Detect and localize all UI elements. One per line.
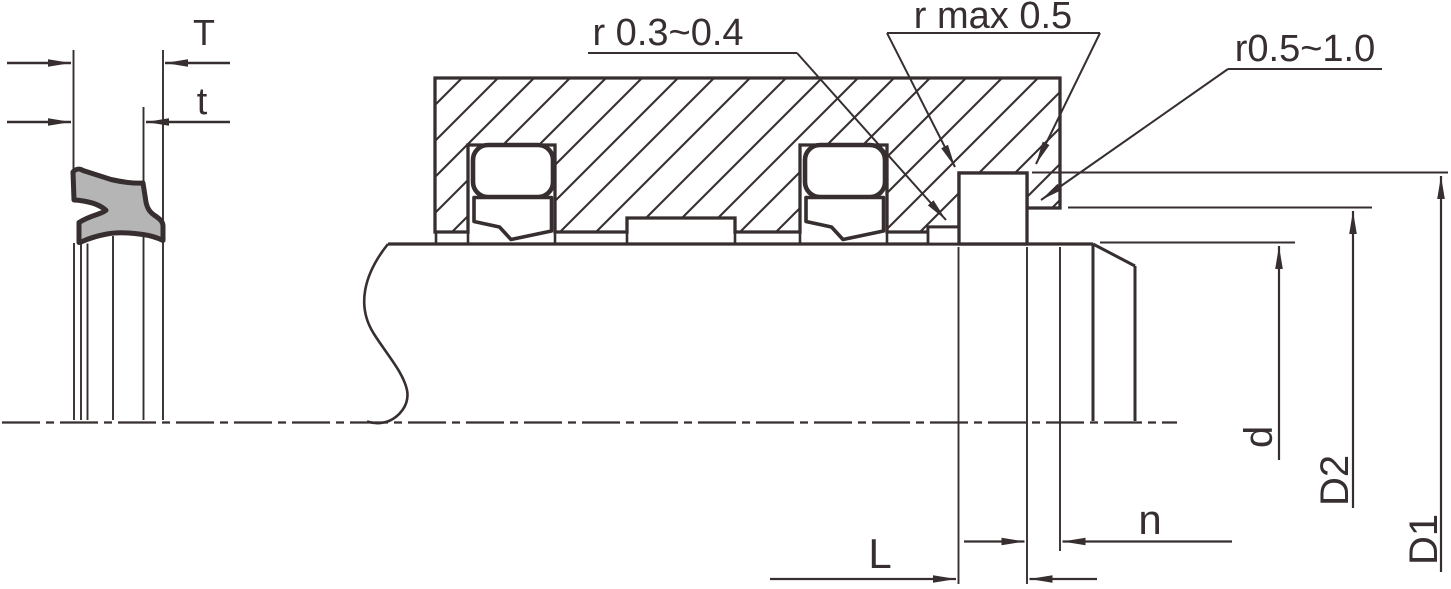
shaft-end-chamfer <box>1093 244 1135 421</box>
dim-label-L: L <box>868 530 891 577</box>
dimension-t: t <box>7 81 230 123</box>
dim-label-n: n <box>1138 496 1161 543</box>
dimension-L: L <box>770 530 1097 579</box>
seal-1-body <box>473 145 553 197</box>
label-r-max: r max 0.5 <box>914 0 1072 37</box>
bottom-dimensions: L n <box>770 247 1232 584</box>
seal-2-lip <box>806 198 884 240</box>
retainer-block <box>959 173 1027 244</box>
dim-label-D1: D1 <box>1402 514 1446 565</box>
seal-1-lip <box>474 198 552 240</box>
dimension-d: d <box>1237 246 1281 460</box>
dimension-D2: D2 <box>1313 211 1357 508</box>
seal-profile-view: T t <box>7 12 230 420</box>
extension-lines-right <box>1032 173 1448 243</box>
installed-seal-2 <box>805 145 885 240</box>
seal-2-body <box>805 145 885 197</box>
retainer-foot <box>928 227 959 244</box>
technical-drawing-page: T t r 0.3~0. <box>0 0 1451 589</box>
installed-seal-1 <box>473 145 553 240</box>
seal-cross-section <box>73 169 163 242</box>
dim-label-D2: D2 <box>1313 455 1357 506</box>
dimension-D1: D1 <box>1402 176 1446 572</box>
dim-label-t: t <box>197 81 208 123</box>
dimension-n: n <box>964 496 1232 543</box>
assembly-view <box>364 78 1135 423</box>
label-r-shaft: r0.5~1.0 <box>1235 28 1376 70</box>
dim-label-d: d <box>1237 426 1281 448</box>
dimension-T: T <box>7 12 230 63</box>
dim-label-T: T <box>193 12 215 53</box>
shaft-break-line <box>364 244 407 423</box>
callout-r-shaft: r0.5~1.0 <box>1041 28 1382 200</box>
extension-lines-bottom <box>959 247 1061 584</box>
seal-installation-drawing: T t r 0.3~0. <box>0 0 1451 589</box>
label-r-groove: r 0.3~0.4 <box>592 12 743 54</box>
